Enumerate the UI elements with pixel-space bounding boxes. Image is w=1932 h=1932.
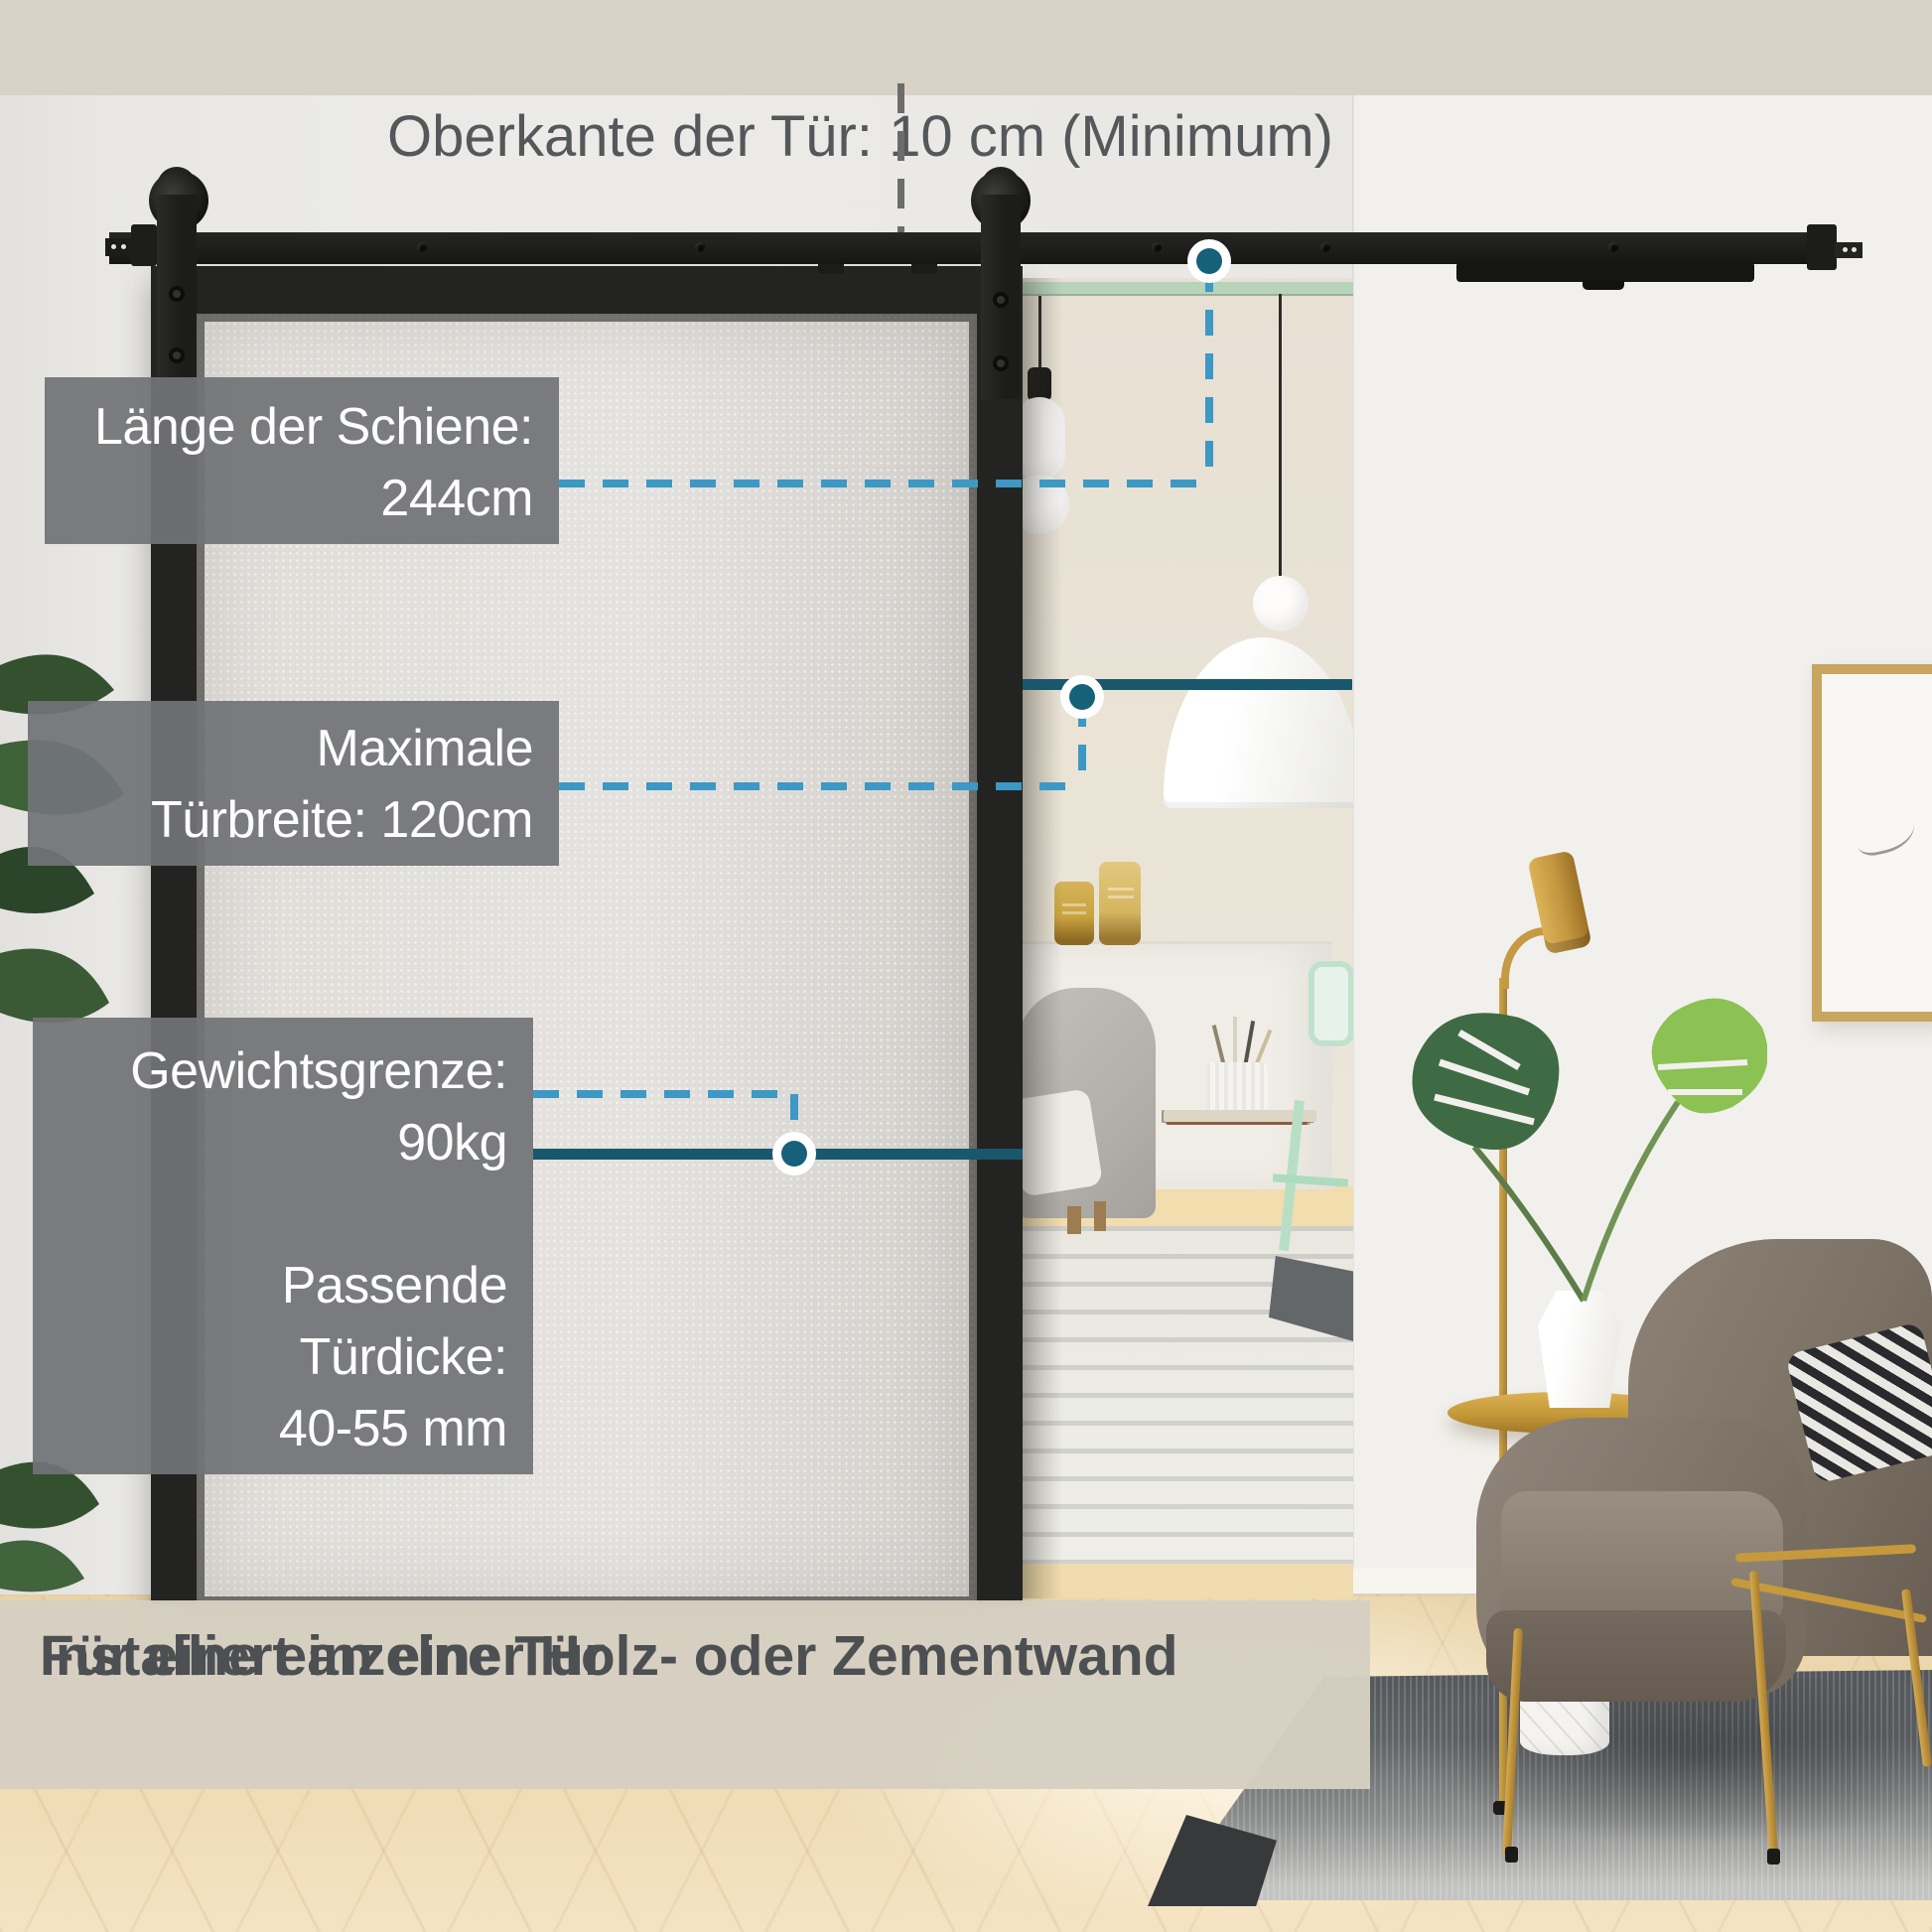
doorway-shadow <box>1023 278 1062 1598</box>
strap-bolt <box>993 355 1009 371</box>
rail-length-dashed-line <box>559 480 1209 487</box>
backroom-floor-strip <box>1023 1564 1353 1598</box>
doorway-opening <box>1023 278 1353 1598</box>
leg-tip <box>1505 1847 1518 1863</box>
top-measurement-note: Oberkante der Tür: 10 cm (Minimum) <box>387 103 1479 170</box>
door-width-label: Maximale Türbreite: 120cm <box>28 701 559 866</box>
backroom-rug <box>1023 1226 1353 1598</box>
pencil <box>1233 1017 1237 1068</box>
measurement-dot-rail <box>1187 239 1231 283</box>
product-infographic: Oberkante der Tür: 10 cm (Minimum) Länge… <box>0 0 1932 1932</box>
thickness-line2: Türdicke: <box>33 1321 507 1393</box>
jar-label-line <box>1108 888 1134 891</box>
thickness-line3: 40-55 mm <box>33 1393 507 1464</box>
rail-bolt <box>417 242 427 252</box>
screw <box>111 244 116 249</box>
info-banner: Für eine einzelne Tür Installiert an ein… <box>0 1600 1370 1789</box>
rail-right-plate <box>1835 242 1863 258</box>
amber-jar <box>1099 862 1141 945</box>
rail-left-stop <box>131 224 157 266</box>
pendant-dome-shade <box>1164 637 1353 808</box>
leg-tip <box>1767 1849 1780 1864</box>
rail-length-dashed-line-vertical <box>1205 266 1213 484</box>
screw <box>121 244 126 249</box>
weight-limit-text: Gewichtsgrenze: <box>33 1035 507 1107</box>
rail-length-label: Länge der Schiene: 244cm <box>45 377 559 544</box>
damper-hook <box>1583 280 1624 290</box>
strap-bolt <box>169 286 185 302</box>
door-width-line2: Türbreite: 120cm <box>28 784 533 856</box>
door-width-line1: Maximale <box>28 713 533 784</box>
weight-dashed-line <box>533 1090 794 1098</box>
pendant-cord <box>1279 294 1282 580</box>
door-width-dashed-line <box>559 782 1082 790</box>
track-rail <box>109 232 1832 264</box>
rail-bolt <box>1608 242 1618 252</box>
measurement-dot-weight <box>772 1132 816 1175</box>
pendant-ball-shade <box>1253 576 1309 631</box>
weight-thickness-label: Gewichtsgrenze: 90kg Passende Türdicke: … <box>33 1018 533 1474</box>
picture-frame <box>1812 664 1932 1022</box>
armchair-front <box>1486 1610 1786 1702</box>
spacer <box>33 1178 507 1250</box>
banner-line2: Installiert an einer Holz- oder Zementwa… <box>40 1616 1178 1697</box>
rail-length-text: Länge der Schiene: <box>45 391 533 463</box>
measurement-dot-width <box>1060 675 1104 719</box>
jar-label-line <box>1062 911 1086 914</box>
rail-bolt <box>1152 242 1162 252</box>
gray-dashed-line <box>897 83 904 232</box>
screw <box>1852 247 1857 252</box>
soft-close-damper <box>1456 262 1754 282</box>
jar-label-line <box>1062 903 1086 906</box>
strap-bolt <box>169 347 185 363</box>
screw <box>1843 247 1848 252</box>
transom-glass <box>1023 282 1353 296</box>
frame-artwork <box>1852 807 1918 859</box>
thickness-line1: Passende <box>33 1250 507 1321</box>
rail-bolt <box>695 242 705 252</box>
chair-leg <box>1067 1206 1081 1234</box>
chair-leg <box>1094 1201 1106 1231</box>
rail-length-value: 244cm <box>45 463 533 534</box>
ceiling-strip <box>0 0 1932 95</box>
mint-chair-back <box>1309 961 1353 1046</box>
strap-bolt <box>993 292 1009 308</box>
rail-bolt <box>1320 242 1330 252</box>
chair-shadow <box>1420 1678 1932 1847</box>
jar-label-line <box>1108 896 1134 898</box>
rail-right-stop <box>1807 224 1837 270</box>
weight-limit-value: 90kg <box>33 1107 507 1178</box>
backroom-rug-edge <box>1269 1256 1353 1341</box>
